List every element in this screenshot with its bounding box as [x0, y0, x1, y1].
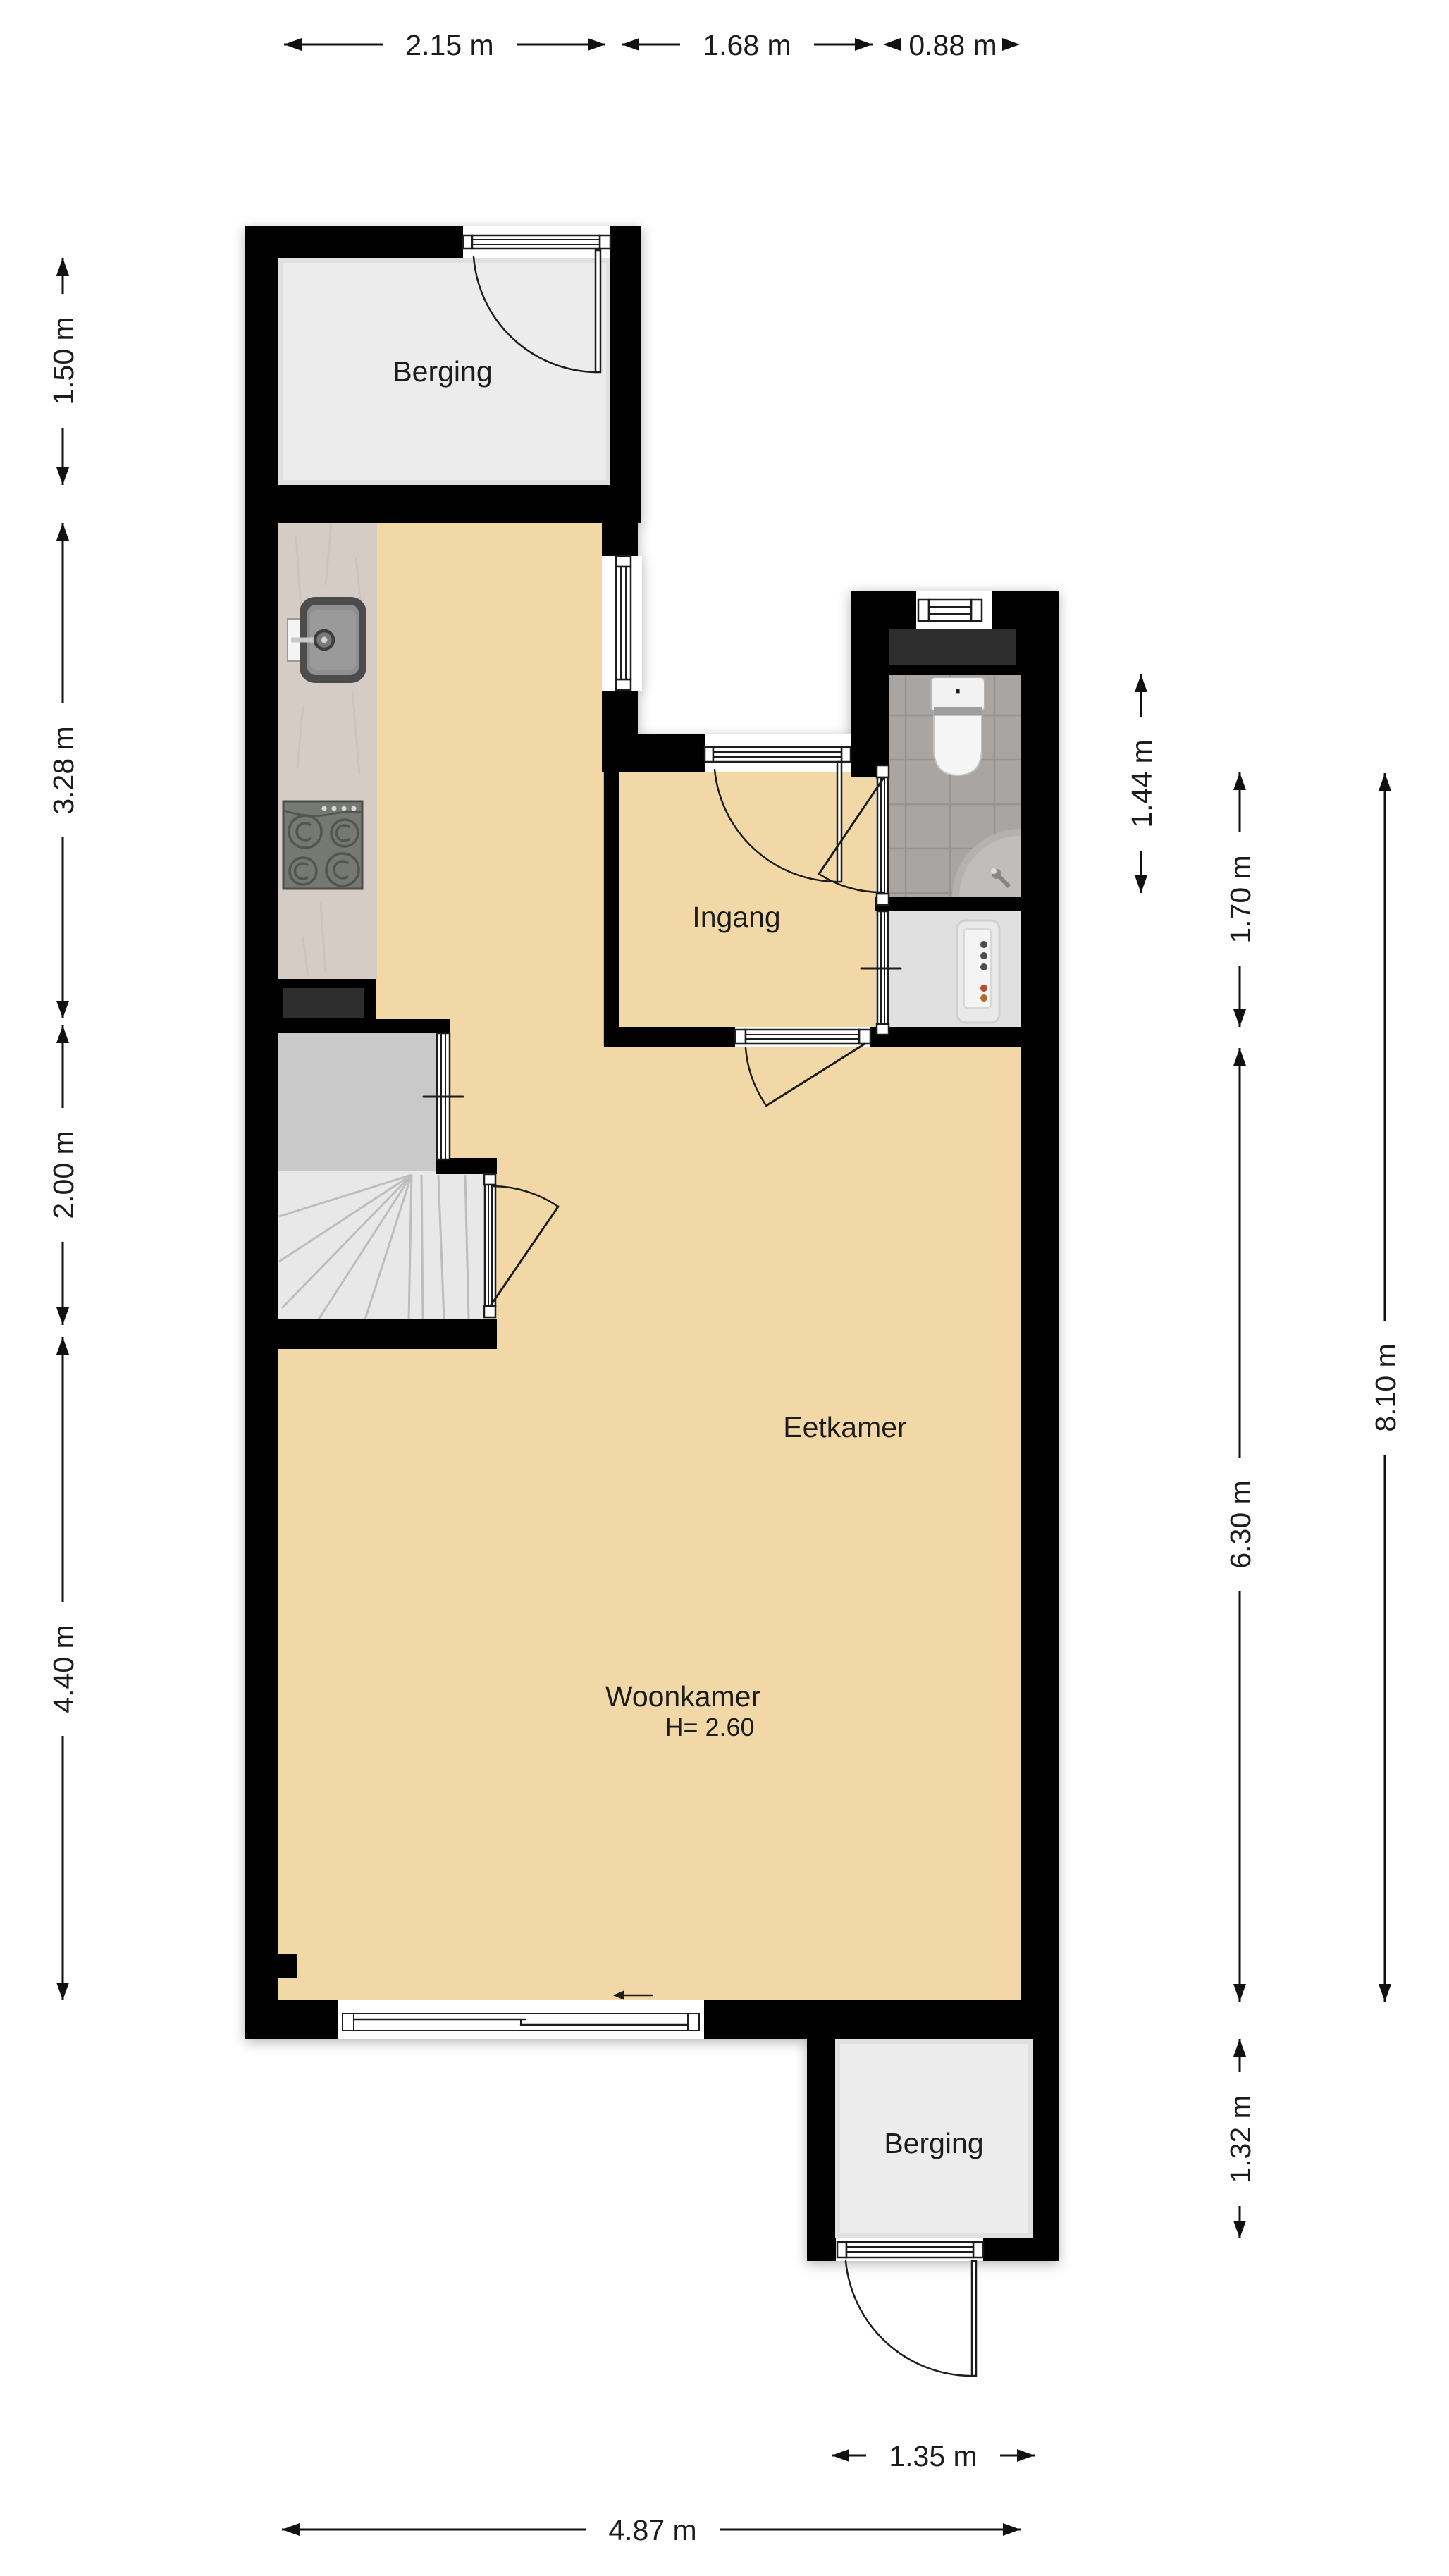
svg-text:1.35 m: 1.35 m: [889, 2440, 977, 2472]
svg-text:Berging: Berging: [393, 355, 492, 388]
svg-text:1.70 m: 1.70 m: [1224, 855, 1257, 943]
svg-text:0.88 m: 0.88 m: [908, 29, 997, 61]
svg-text:1.32 m: 1.32 m: [1224, 2095, 1257, 2183]
svg-text:Eetkamer: Eetkamer: [783, 1411, 906, 1443]
svg-text:H= 2.60: H= 2.60: [665, 1713, 754, 1742]
svg-text:Woonkamer: Woonkamer: [605, 1680, 760, 1713]
svg-text:6.30 m: 6.30 m: [1224, 1480, 1257, 1568]
svg-text:2.15 m: 2.15 m: [405, 29, 493, 61]
svg-text:8.10 m: 8.10 m: [1369, 1343, 1402, 1431]
svg-text:1.44 m: 1.44 m: [1126, 739, 1158, 827]
svg-text:2.00 m: 2.00 m: [47, 1130, 80, 1219]
svg-text:■: ■: [956, 687, 961, 696]
svg-text:4.87 m: 4.87 m: [608, 2514, 696, 2546]
svg-text:1.50 m: 1.50 m: [47, 316, 80, 405]
svg-text:4.40 m: 4.40 m: [47, 1625, 80, 1713]
svg-text:1.68 m: 1.68 m: [703, 29, 791, 61]
svg-text:Ingang: Ingang: [692, 901, 780, 933]
svg-text:3.28 m: 3.28 m: [47, 726, 80, 814]
svg-text:Berging: Berging: [884, 2127, 983, 2159]
